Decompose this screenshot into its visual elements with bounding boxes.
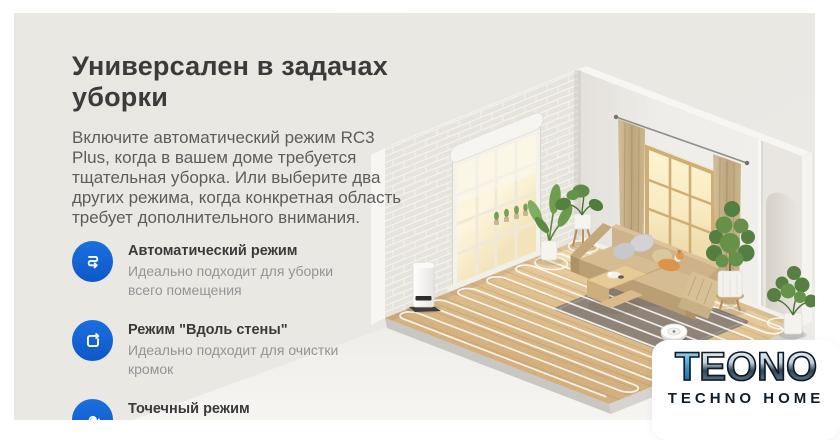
promo-image: Универсален в задачах уборки Включите ав…	[0, 0, 840, 440]
feature-description: Идеально подходит для очистки кромок	[128, 341, 346, 378]
feature-title: Режим "Вдоль стены"	[128, 321, 346, 339]
feature-title: Точечный режим	[128, 400, 346, 418]
serpentine-route-icon	[72, 241, 113, 282]
spiral-spot-icon	[72, 399, 113, 420]
feature-edge-mode: Режим "Вдоль стены" Идеально подходит дл…	[72, 320, 417, 378]
intro-paragraph: Включите автоматический режим RC3 Plus, …	[72, 128, 408, 228]
brand-tagline: TECHNO HOME	[668, 390, 825, 407]
wall-follow-icon	[72, 320, 113, 361]
brand-rest: EONO	[699, 345, 817, 389]
page-title: Универсален в задачах уборки	[72, 51, 417, 113]
feature-title: Автоматический режим	[128, 242, 346, 260]
text-column: Универсален в задачах уборки Включите ав…	[72, 51, 417, 420]
feature-spot-mode: Точечный режим Идеально подходит для очи…	[72, 399, 417, 420]
brand-logo: TEONO TECHNO HOME	[652, 340, 840, 440]
feature-list: Автоматический режим Идеально подходит д…	[72, 241, 417, 420]
brand-wordmark: TEONO	[675, 347, 817, 387]
brand-initial: T	[675, 345, 699, 389]
feature-description: Идеально подходит для уборки всего помещ…	[128, 262, 346, 299]
feature-auto-mode: Автоматический режим Идеально подходит д…	[72, 241, 417, 299]
